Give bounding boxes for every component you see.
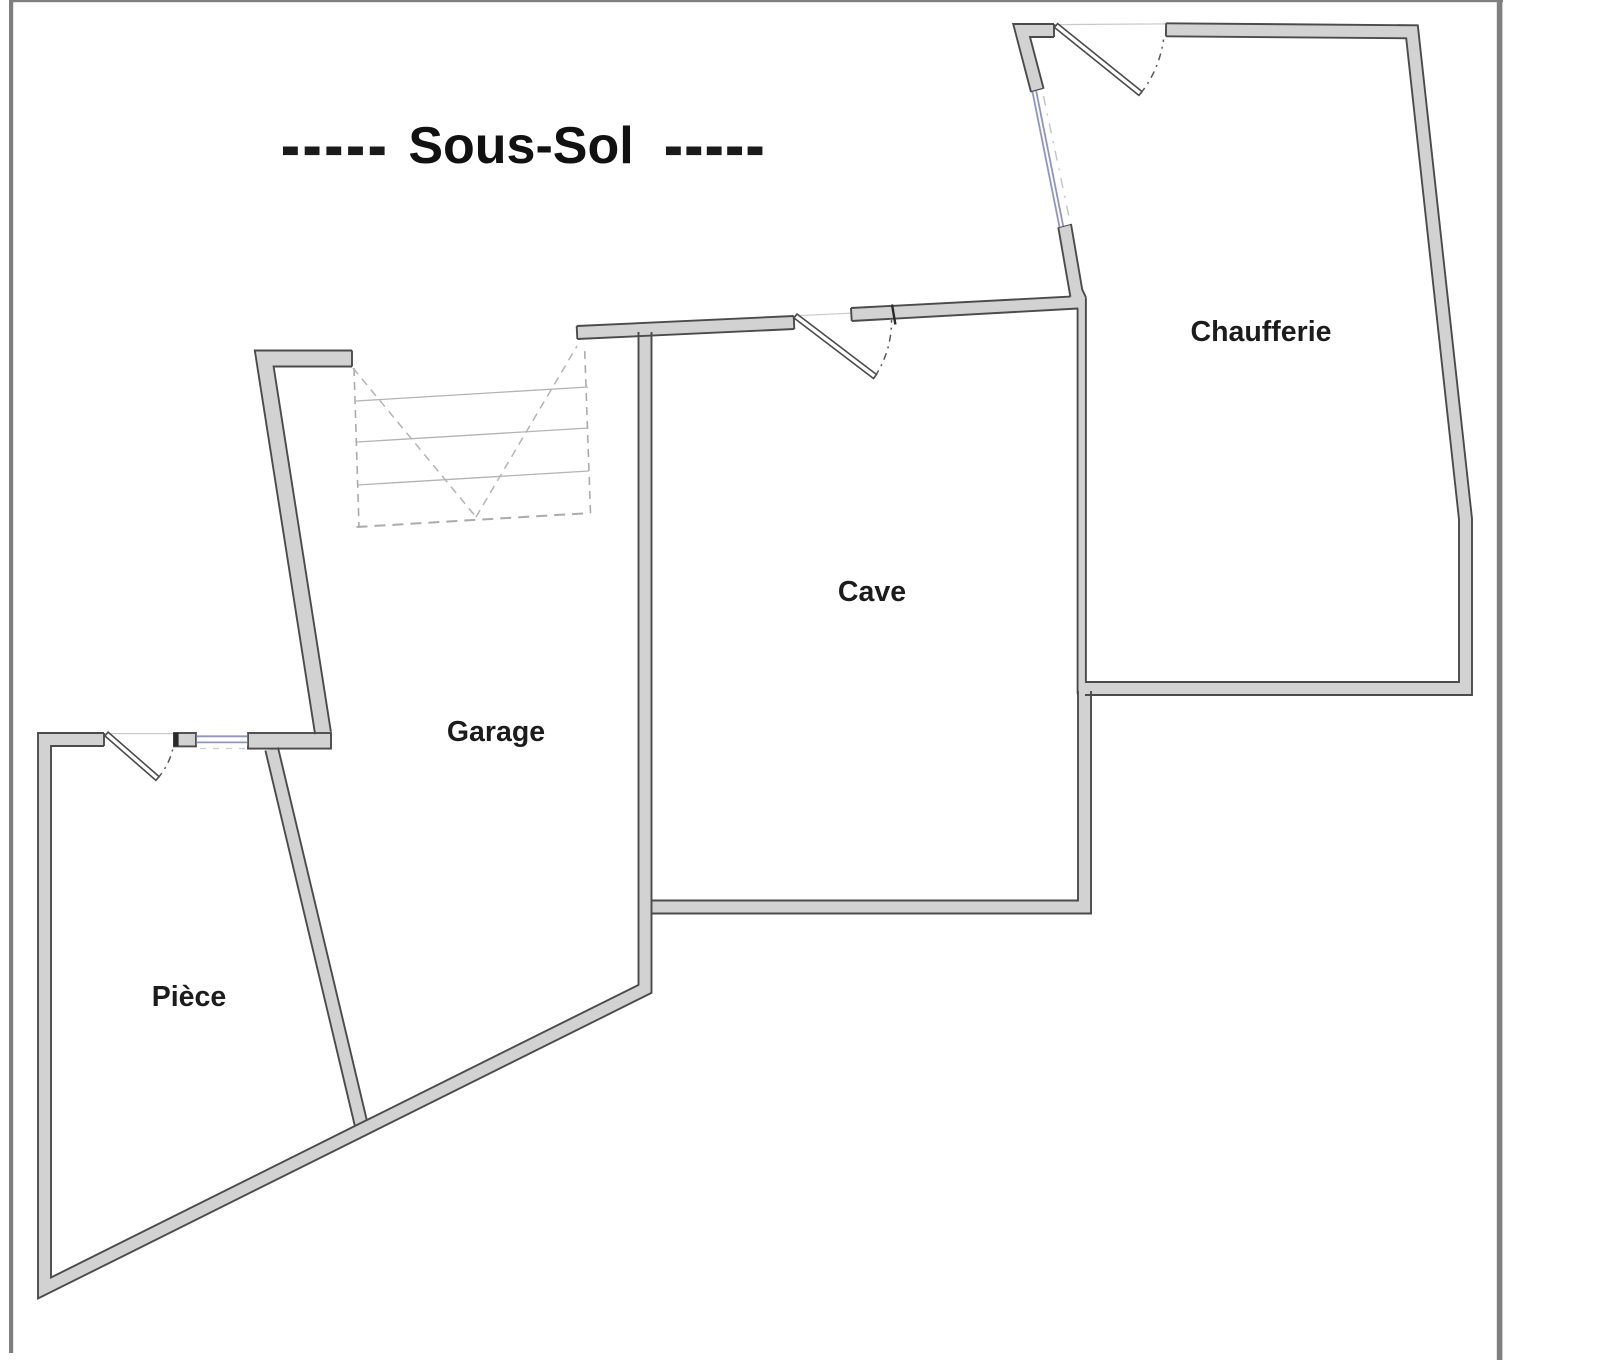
svg-text:Cave: Cave xyxy=(838,576,906,608)
svg-text:Garage: Garage xyxy=(447,716,545,748)
svg-text:Sous-Sol: Sous-Sol xyxy=(408,117,633,175)
svg-text:Pièce: Pièce xyxy=(152,981,226,1013)
svg-text:Chaufferie: Chaufferie xyxy=(1191,316,1332,348)
